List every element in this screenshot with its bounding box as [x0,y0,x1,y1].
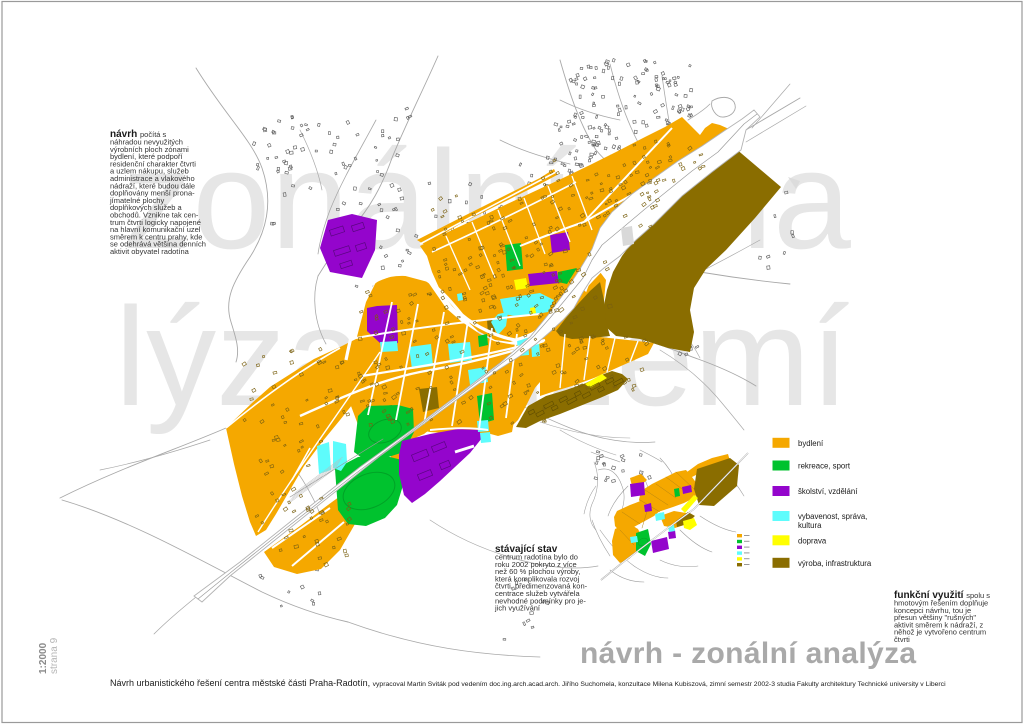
svg-text:jich využívání: jich využívání [494,604,541,613]
svg-text:doprava: doprava [798,536,827,545]
svg-text:kultura: kultura [798,521,822,530]
svg-text:vybavenost, správa,: vybavenost, správa, [798,512,867,521]
svg-text:bydlení: bydlení [798,439,824,448]
svg-text:rekreace, sport: rekreace, sport [798,462,851,471]
svg-text:strana 9: strana 9 [49,637,60,674]
svg-text:návrh - zonální analýza: návrh - zonální analýza [580,637,916,670]
svg-text:1:2000: 1:2000 [38,642,49,674]
svg-text:školství, vzdělání: školství, vzdělání [798,487,858,496]
svg-text:aktivit obyvatel radotína: aktivit obyvatel radotína [110,247,190,256]
svg-text:výroba, infrastruktura: výroba, infrastruktura [798,559,872,568]
